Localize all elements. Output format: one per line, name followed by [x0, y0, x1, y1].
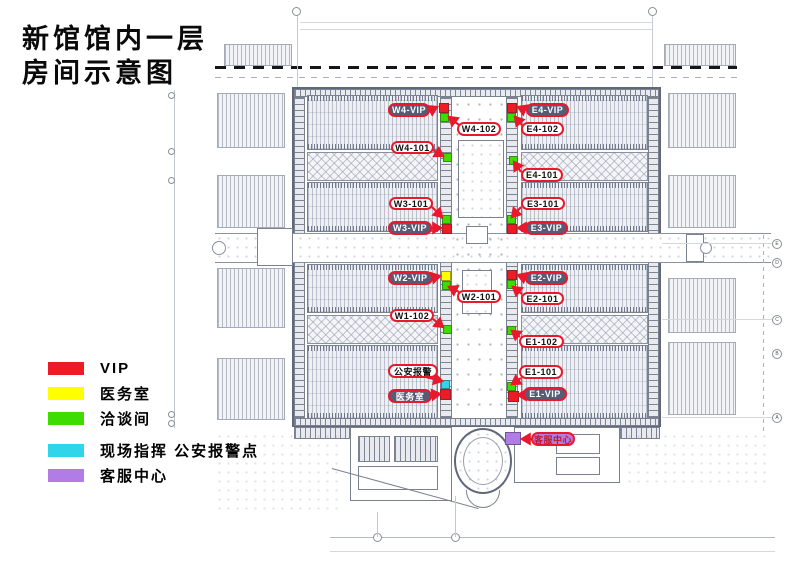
- dock-comb-structure: [224, 44, 292, 66]
- room-marker-e2-talk: [507, 280, 516, 289]
- dimension-line: [300, 29, 652, 30]
- room-marker-w3-101: [442, 215, 451, 224]
- callout-w1-102: W1-102: [390, 309, 434, 322]
- callout-w2-101: W2-101: [457, 290, 501, 303]
- parking-comb: [668, 342, 736, 415]
- room-marker-e4-talk: [507, 113, 516, 122]
- callout-w3-vip: W3-VIP: [388, 221, 432, 235]
- callout-w4-101: W4-101: [391, 141, 434, 154]
- room-marker-w4-talk: [440, 113, 449, 122]
- room-marker-alarm: [441, 380, 450, 389]
- legend-label: 客服中心: [100, 465, 168, 486]
- grid-axis-line: [377, 512, 378, 537]
- legend-item-4: 客服中心: [48, 469, 378, 482]
- dimension-line: [330, 537, 775, 538]
- grid-axis-bubble-C: C: [772, 315, 782, 325]
- legend: VIP医务室洽谈间现场指挥 公安报警点客服中心: [48, 362, 378, 482]
- parking-comb: [217, 175, 285, 228]
- legend-swatch: [48, 469, 84, 482]
- page-title: 新馆馆内一层 房间示意图: [22, 22, 208, 90]
- legend-swatch: [48, 362, 84, 375]
- callout-yiwushi: 医务室: [388, 389, 432, 403]
- grid-axis-line: [297, 16, 298, 87]
- grid-axis-bubble-D: D: [772, 258, 782, 268]
- grid-axis-bubble: [648, 7, 657, 16]
- parking-comb: [668, 175, 736, 228]
- parking-comb: [668, 93, 736, 148]
- room-marker-w4-101: [443, 153, 452, 162]
- grid-axis-bubble-E: E: [772, 239, 782, 249]
- callout-e3-101: E3-101: [521, 197, 565, 210]
- callout-w3-101: W3-101: [389, 197, 433, 210]
- legend-item-0: VIP: [48, 362, 378, 375]
- callout-e2-101: E2-101: [521, 292, 564, 305]
- grid-axis-bubble: [292, 7, 301, 16]
- callout-e2-vip: E2-VIP: [525, 271, 568, 285]
- grid-line: [662, 417, 774, 418]
- legend-label: 现场指挥 公安报警点: [100, 440, 259, 461]
- legend-item-1: 医务室: [48, 387, 378, 400]
- paving-pattern: [625, 432, 770, 488]
- callout-w4-vip: W4-VIP: [388, 103, 430, 117]
- dock-comb-structure: [664, 44, 736, 66]
- callout-e4-102: E4-102: [521, 122, 564, 136]
- parking-comb: [217, 93, 285, 148]
- floor-plan-page: 新馆馆内一层 房间示意图 VIP医务室洽谈间现场指挥 公安报警点客服中心: [0, 0, 800, 566]
- parking-comb: [217, 268, 285, 328]
- callout-w2-vip: W2-VIP: [388, 271, 433, 285]
- room-marker-w4-vip: [439, 103, 449, 113]
- grid-axis-bubble-B: B: [772, 349, 782, 359]
- grid-line: [662, 319, 774, 320]
- legend-swatch: [48, 412, 84, 425]
- room-marker-w2-med: [441, 271, 451, 281]
- corridor-west-wing: [257, 228, 293, 266]
- grid-axis-bubble-A: A: [772, 413, 782, 423]
- callout-gongan: 公安报警: [388, 364, 438, 378]
- grid-axis-line: [763, 235, 764, 431]
- entrance-room: [394, 436, 438, 462]
- callout-e3-vip: E3-VIP: [525, 221, 568, 235]
- grid-axis-bubble: [168, 177, 175, 184]
- truss-band: [307, 152, 438, 181]
- dimension-line: [330, 551, 775, 552]
- callout-e1-101: E1-101: [519, 365, 563, 379]
- dimension-line: [300, 22, 652, 23]
- room-marker-w3-vip: [442, 224, 452, 234]
- callout-kefu: 客服中心: [531, 432, 575, 446]
- legend-item-2: 洽谈间: [48, 412, 378, 425]
- room-marker-e3-101: [507, 215, 516, 224]
- page-title-line1: 新馆馆内一层: [22, 22, 208, 56]
- legend-label: VIP: [100, 360, 130, 377]
- legend-item-3: 现场指挥 公安报警点: [48, 444, 378, 457]
- callout-e4-101: E4-101: [521, 168, 563, 182]
- legend-label: 洽谈间: [100, 408, 151, 429]
- room-marker-service: [505, 432, 521, 445]
- room-marker-e4-vip: [507, 103, 517, 113]
- room-marker-w1-102: [443, 325, 452, 334]
- grid-axis-bubble: [168, 92, 175, 99]
- callout-e1-102: E1-102: [519, 335, 564, 348]
- page-title-line2: 房间示意图: [22, 56, 208, 90]
- room-marker-e2-vip: [507, 270, 517, 280]
- corridor-west-end-cap: [212, 241, 226, 255]
- room-marker-e3-vip: [507, 224, 517, 234]
- exhibition-hall-e1: [521, 345, 648, 419]
- grid-axis-line: [652, 16, 653, 87]
- callout-e1-vip: E1-VIP: [523, 387, 567, 401]
- site-boundary-dashed-line: [215, 66, 737, 69]
- legend-swatch: [48, 387, 84, 400]
- entrance-room: [556, 457, 600, 475]
- secondary-dashed-line: [215, 77, 737, 78]
- central-core-block: [466, 226, 488, 244]
- parking-comb: [668, 278, 736, 333]
- legend-label: 医务室: [100, 383, 151, 404]
- legend-swatch: [48, 444, 84, 457]
- room-marker-e1-102: [507, 326, 516, 335]
- callout-e4-vip: E4-VIP: [526, 103, 569, 117]
- grid-axis-line: [455, 496, 456, 537]
- callout-w4-102: W4-102: [457, 122, 501, 136]
- room-marker-e1-101: [507, 382, 516, 391]
- room-marker-med: [440, 389, 451, 400]
- room-marker-w2-talk: [442, 281, 451, 290]
- room-marker-e1-vip: [508, 391, 519, 402]
- rotunda-inner-ring: [463, 437, 503, 485]
- room-marker-e4-101: [509, 156, 518, 165]
- grid-axis-bubble: [168, 148, 175, 155]
- central-core-block: [458, 140, 504, 218]
- grid-line: [662, 243, 774, 244]
